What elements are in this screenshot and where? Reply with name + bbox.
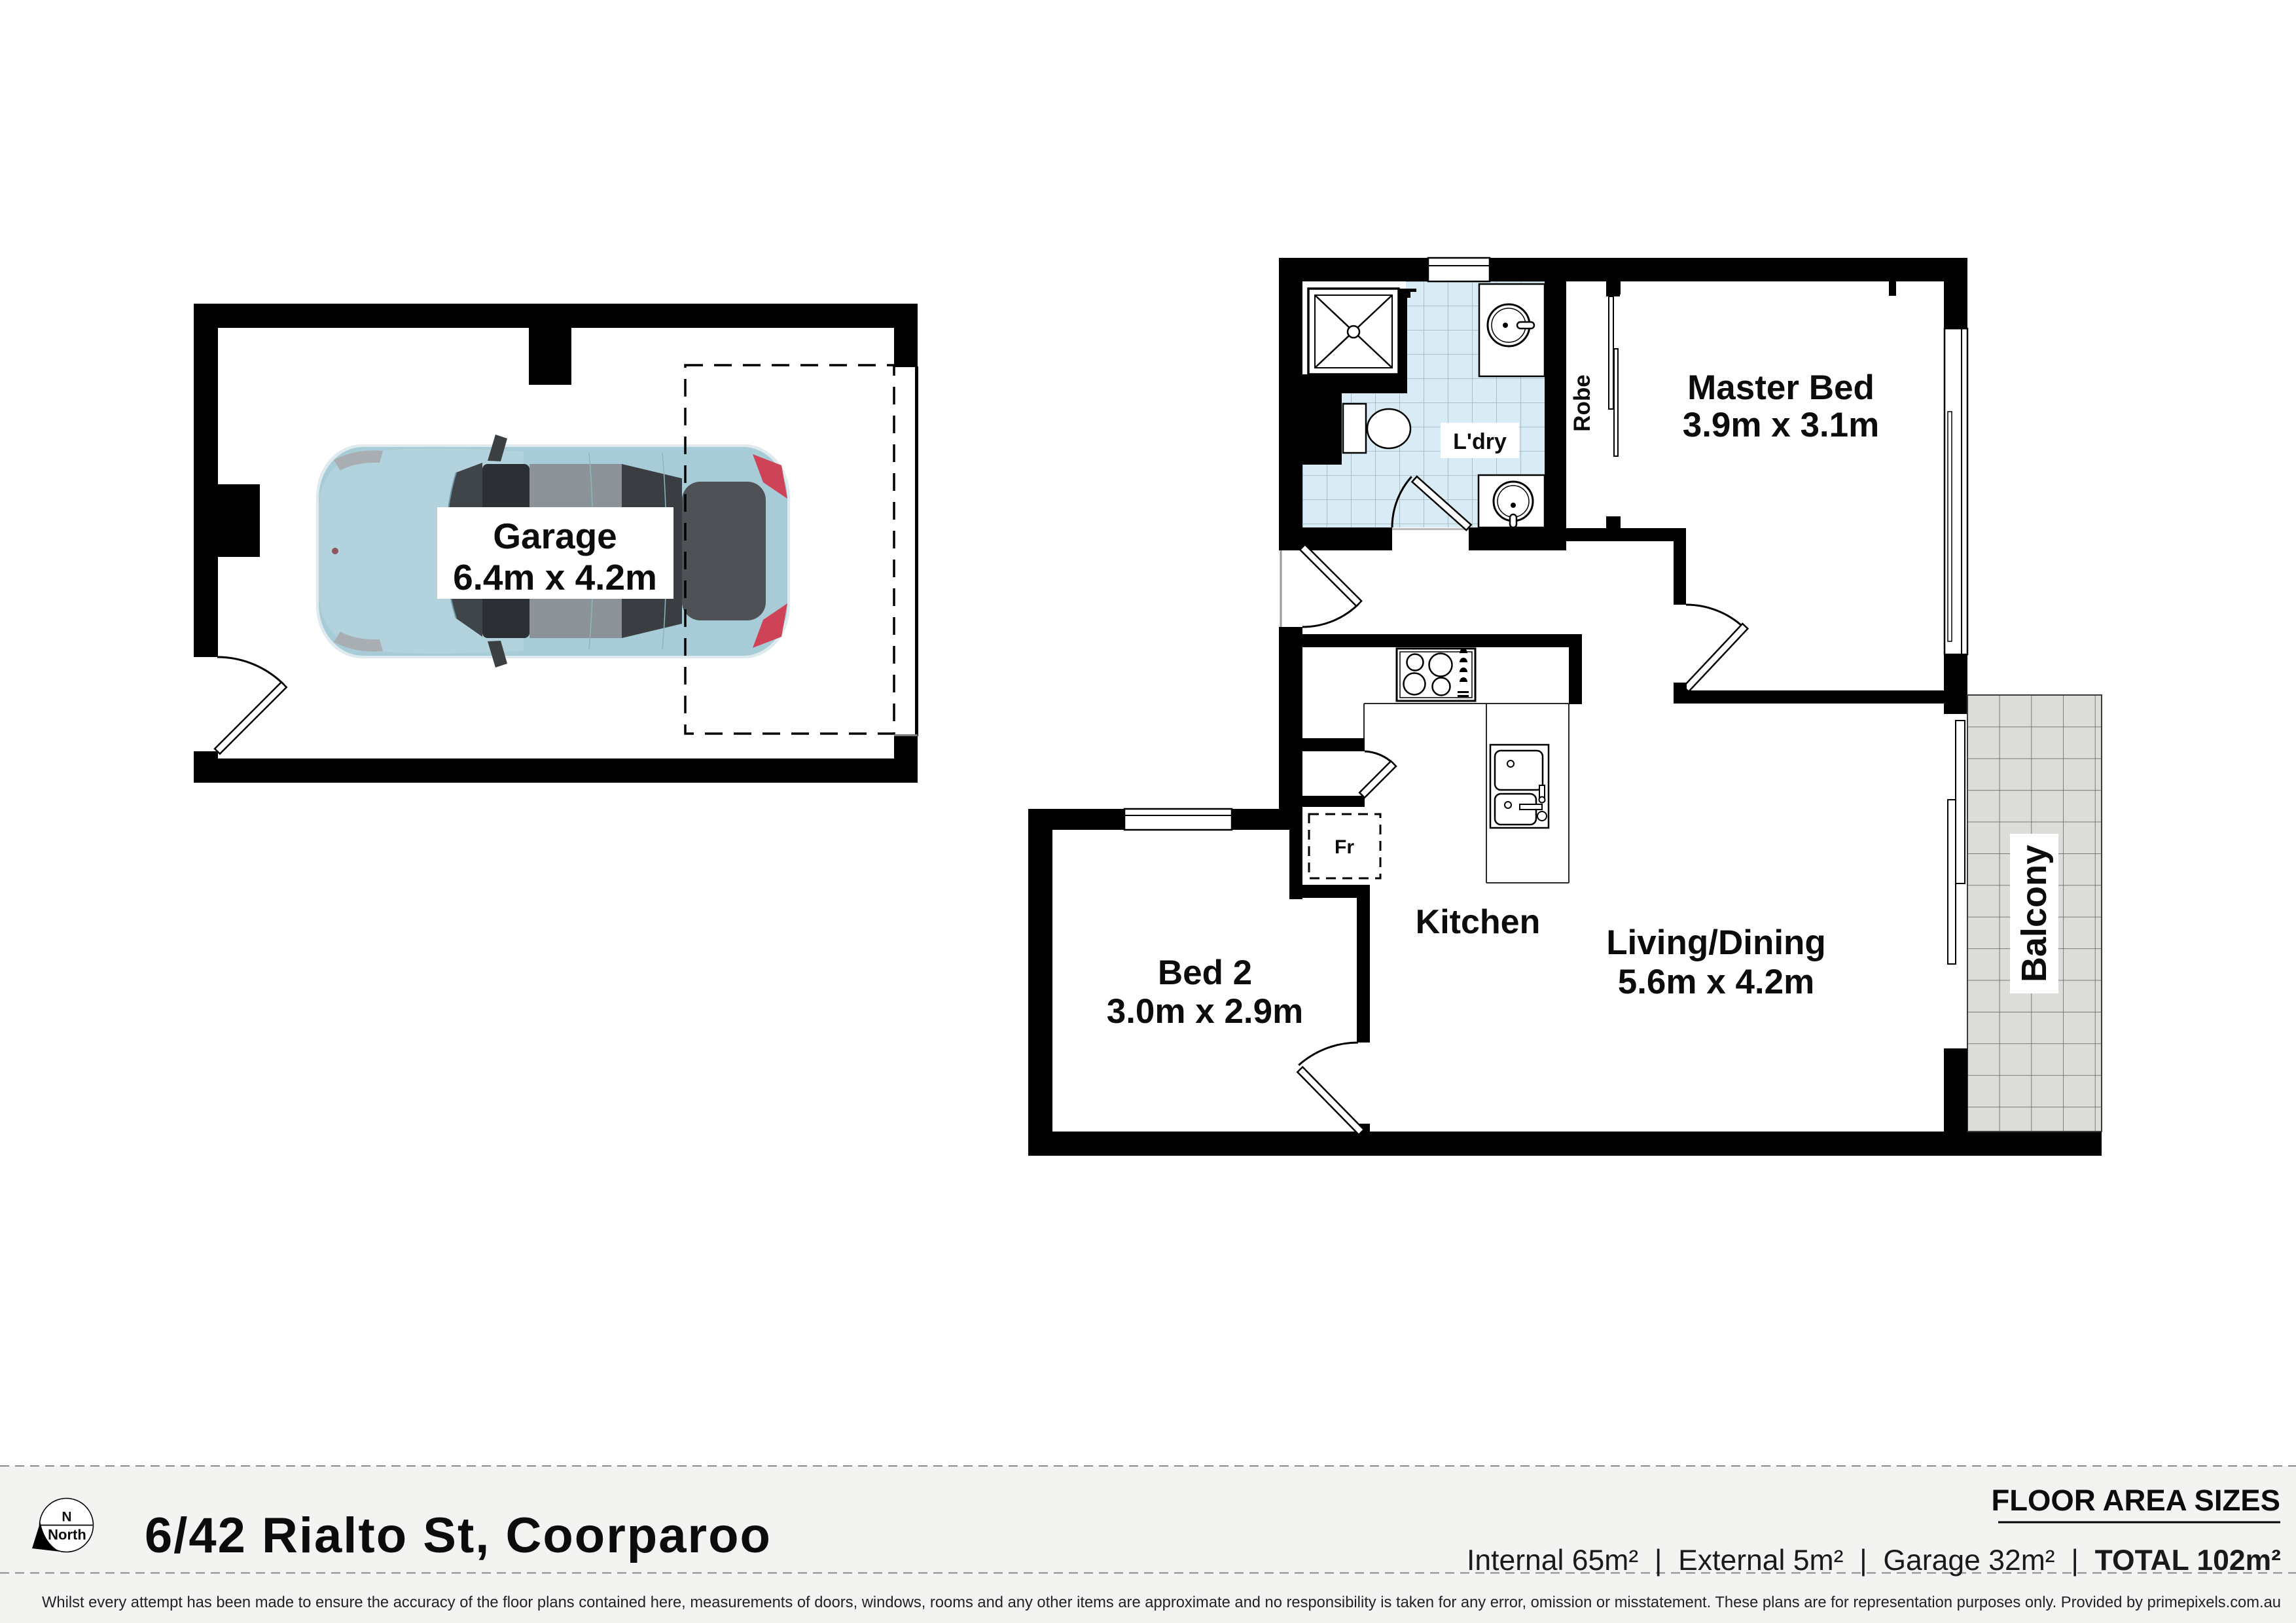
svg-text:Balcony: Balcony — [2015, 845, 2054, 982]
svg-text:N: N — [62, 1510, 71, 1525]
svg-text:6.4m x 4.2m: 6.4m x 4.2m — [453, 557, 657, 597]
svg-text:3.9m x 3.1m: 3.9m x 3.1m — [1683, 406, 1880, 444]
svg-text:5.6m x 4.2m: 5.6m x 4.2m — [1618, 963, 1815, 1001]
svg-text:Fr: Fr — [1335, 836, 1354, 858]
svg-text:Robe: Robe — [1570, 374, 1595, 432]
svg-text:Master Bed: Master Bed — [1687, 368, 1874, 407]
svg-text:Internal 65m² | External 5m²: Internal 65m² | External 5m² | Garage 32… — [1467, 1544, 2281, 1577]
svg-text:North: North — [48, 1527, 86, 1543]
svg-text:FLOOR AREA SIZES: FLOOR AREA SIZES — [1991, 1484, 2280, 1517]
svg-text:3.0m x 2.9m: 3.0m x 2.9m — [1107, 992, 1304, 1031]
svg-text:Garage: Garage — [493, 516, 617, 556]
svg-text:Whilst every attempt has been: Whilst every attempt has been made to en… — [42, 1594, 2281, 1611]
svg-text:Bed 2: Bed 2 — [1158, 954, 1252, 992]
svg-text:6/42 Rialto St, Coorparoo: 6/42 Rialto St, Coorparoo — [145, 1508, 772, 1563]
svg-text:Living/Dining: Living/Dining — [1606, 923, 1826, 962]
svg-text:L'dry: L'dry — [1453, 429, 1507, 454]
svg-text:Kitchen: Kitchen — [1416, 903, 1541, 941]
